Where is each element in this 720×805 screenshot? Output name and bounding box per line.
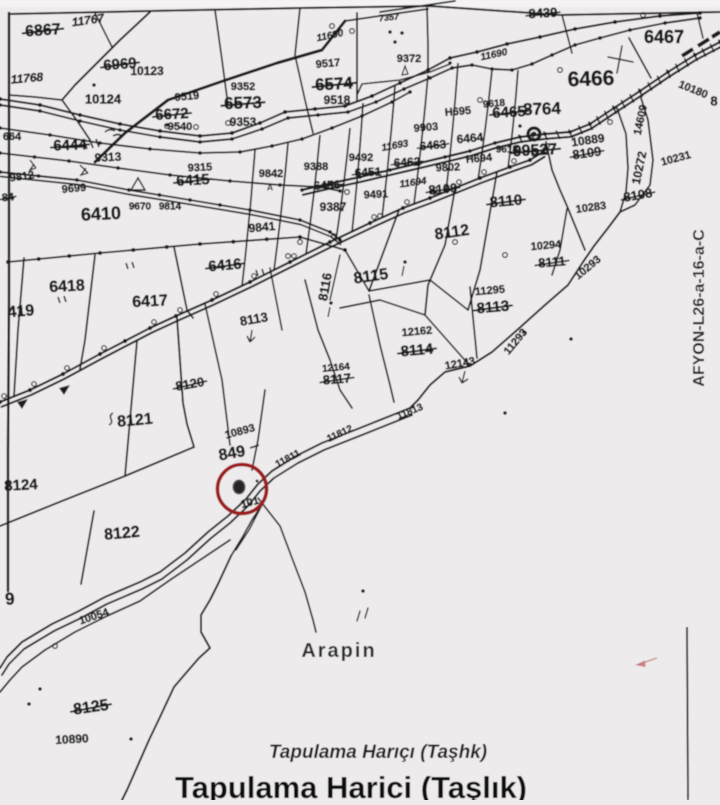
svg-text:10123: 10123	[130, 64, 164, 78]
svg-text:9353: 9353	[230, 115, 257, 129]
svg-text:9387: 9387	[320, 200, 347, 214]
svg-text:H694: H694	[465, 152, 493, 166]
svg-text:9841: 9841	[248, 219, 276, 235]
svg-text:6417: 6417	[132, 292, 169, 311]
svg-text:664: 664	[3, 131, 22, 143]
svg-text:9492: 9492	[349, 152, 373, 164]
svg-text:8: 8	[710, 93, 717, 108]
svg-text:8122: 8122	[104, 524, 141, 544]
svg-text:9517: 9517	[315, 57, 340, 71]
svg-text:10124: 10124	[85, 91, 122, 106]
svg-text:H695: H695	[444, 105, 471, 119]
svg-text:8121: 8121	[117, 411, 154, 431]
svg-text:A: A	[267, 182, 274, 192]
svg-text:9903: 9903	[413, 121, 438, 135]
svg-text:9540: 9540	[168, 121, 192, 133]
svg-text:9814: 9814	[159, 202, 182, 213]
svg-text:9313: 9313	[94, 149, 122, 164]
svg-text:6466: 6466	[567, 67, 614, 92]
svg-text:Tapulama Harici (Taşlık): Tapulama Harici (Taşlık)	[175, 770, 527, 800]
svg-text:9670: 9670	[129, 202, 152, 213]
svg-text:9491: 9491	[363, 188, 388, 201]
svg-text:6464: 6464	[456, 130, 484, 146]
svg-text:9372: 9372	[397, 53, 421, 65]
svg-text:9519: 9519	[174, 90, 199, 104]
svg-text:9842: 9842	[259, 168, 283, 180]
svg-text:9802: 9802	[435, 161, 460, 174]
svg-text:9699: 9699	[61, 182, 86, 196]
svg-text:AFYON-L26-a-16-a-C: AFYON-L26-a-16-a-C	[691, 229, 708, 387]
svg-text:7357: 7357	[379, 11, 401, 23]
svg-text:9518: 9518	[324, 93, 351, 107]
svg-text:9352: 9352	[231, 81, 255, 93]
svg-text:10890: 10890	[55, 731, 89, 747]
svg-text:Tapulama Harıçı (Taşhk): Tapulama Harıçı (Taşhk)	[269, 742, 487, 763]
svg-text:6418: 6418	[49, 277, 86, 296]
svg-text:9: 9	[4, 589, 15, 609]
svg-text:Arapin: Arapin	[301, 640, 376, 662]
svg-text:9388: 9388	[304, 161, 328, 173]
svg-text:11768: 11768	[10, 70, 44, 87]
svg-text:419: 419	[7, 302, 35, 321]
svg-text:6467: 6467	[644, 27, 684, 47]
svg-text:8764: 8764	[523, 99, 562, 119]
svg-text:6410: 6410	[80, 203, 121, 225]
svg-text:8124: 8124	[4, 476, 39, 495]
